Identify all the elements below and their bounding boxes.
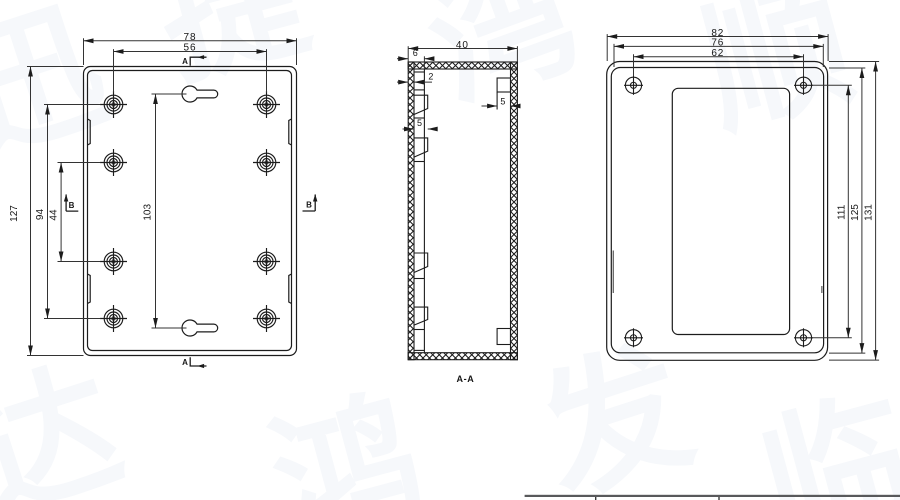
svg-text:94: 94 (35, 209, 46, 221)
svg-text:发: 发 (521, 323, 709, 500)
svg-text:2: 2 (428, 71, 433, 81)
svg-text:111: 111 (836, 204, 847, 220)
svg-text:62: 62 (711, 48, 724, 59)
svg-text:迅: 迅 (0, 0, 124, 182)
svg-text:B: B (306, 201, 312, 210)
svg-text:A: A (182, 358, 188, 367)
svg-text:44: 44 (49, 209, 60, 221)
svg-text:5: 5 (500, 97, 505, 107)
svg-text:临: 临 (746, 375, 900, 500)
svg-text:6: 6 (413, 48, 418, 58)
svg-text:顺: 顺 (686, 0, 868, 154)
svg-text:40: 40 (456, 40, 469, 51)
svg-text:131: 131 (864, 204, 875, 221)
svg-text:125: 125 (850, 204, 861, 221)
svg-text:78: 78 (184, 32, 197, 43)
svg-text:5: 5 (417, 118, 422, 128)
svg-text:103: 103 (143, 204, 154, 221)
svg-text:127: 127 (9, 205, 20, 222)
svg-text:B: B (69, 201, 75, 210)
svg-text:A: A (182, 57, 188, 66)
svg-text:56: 56 (184, 42, 197, 53)
svg-text:达: 达 (0, 343, 139, 500)
svg-text:鸿: 鸿 (256, 375, 438, 500)
svg-text:A-A: A-A (457, 374, 475, 384)
